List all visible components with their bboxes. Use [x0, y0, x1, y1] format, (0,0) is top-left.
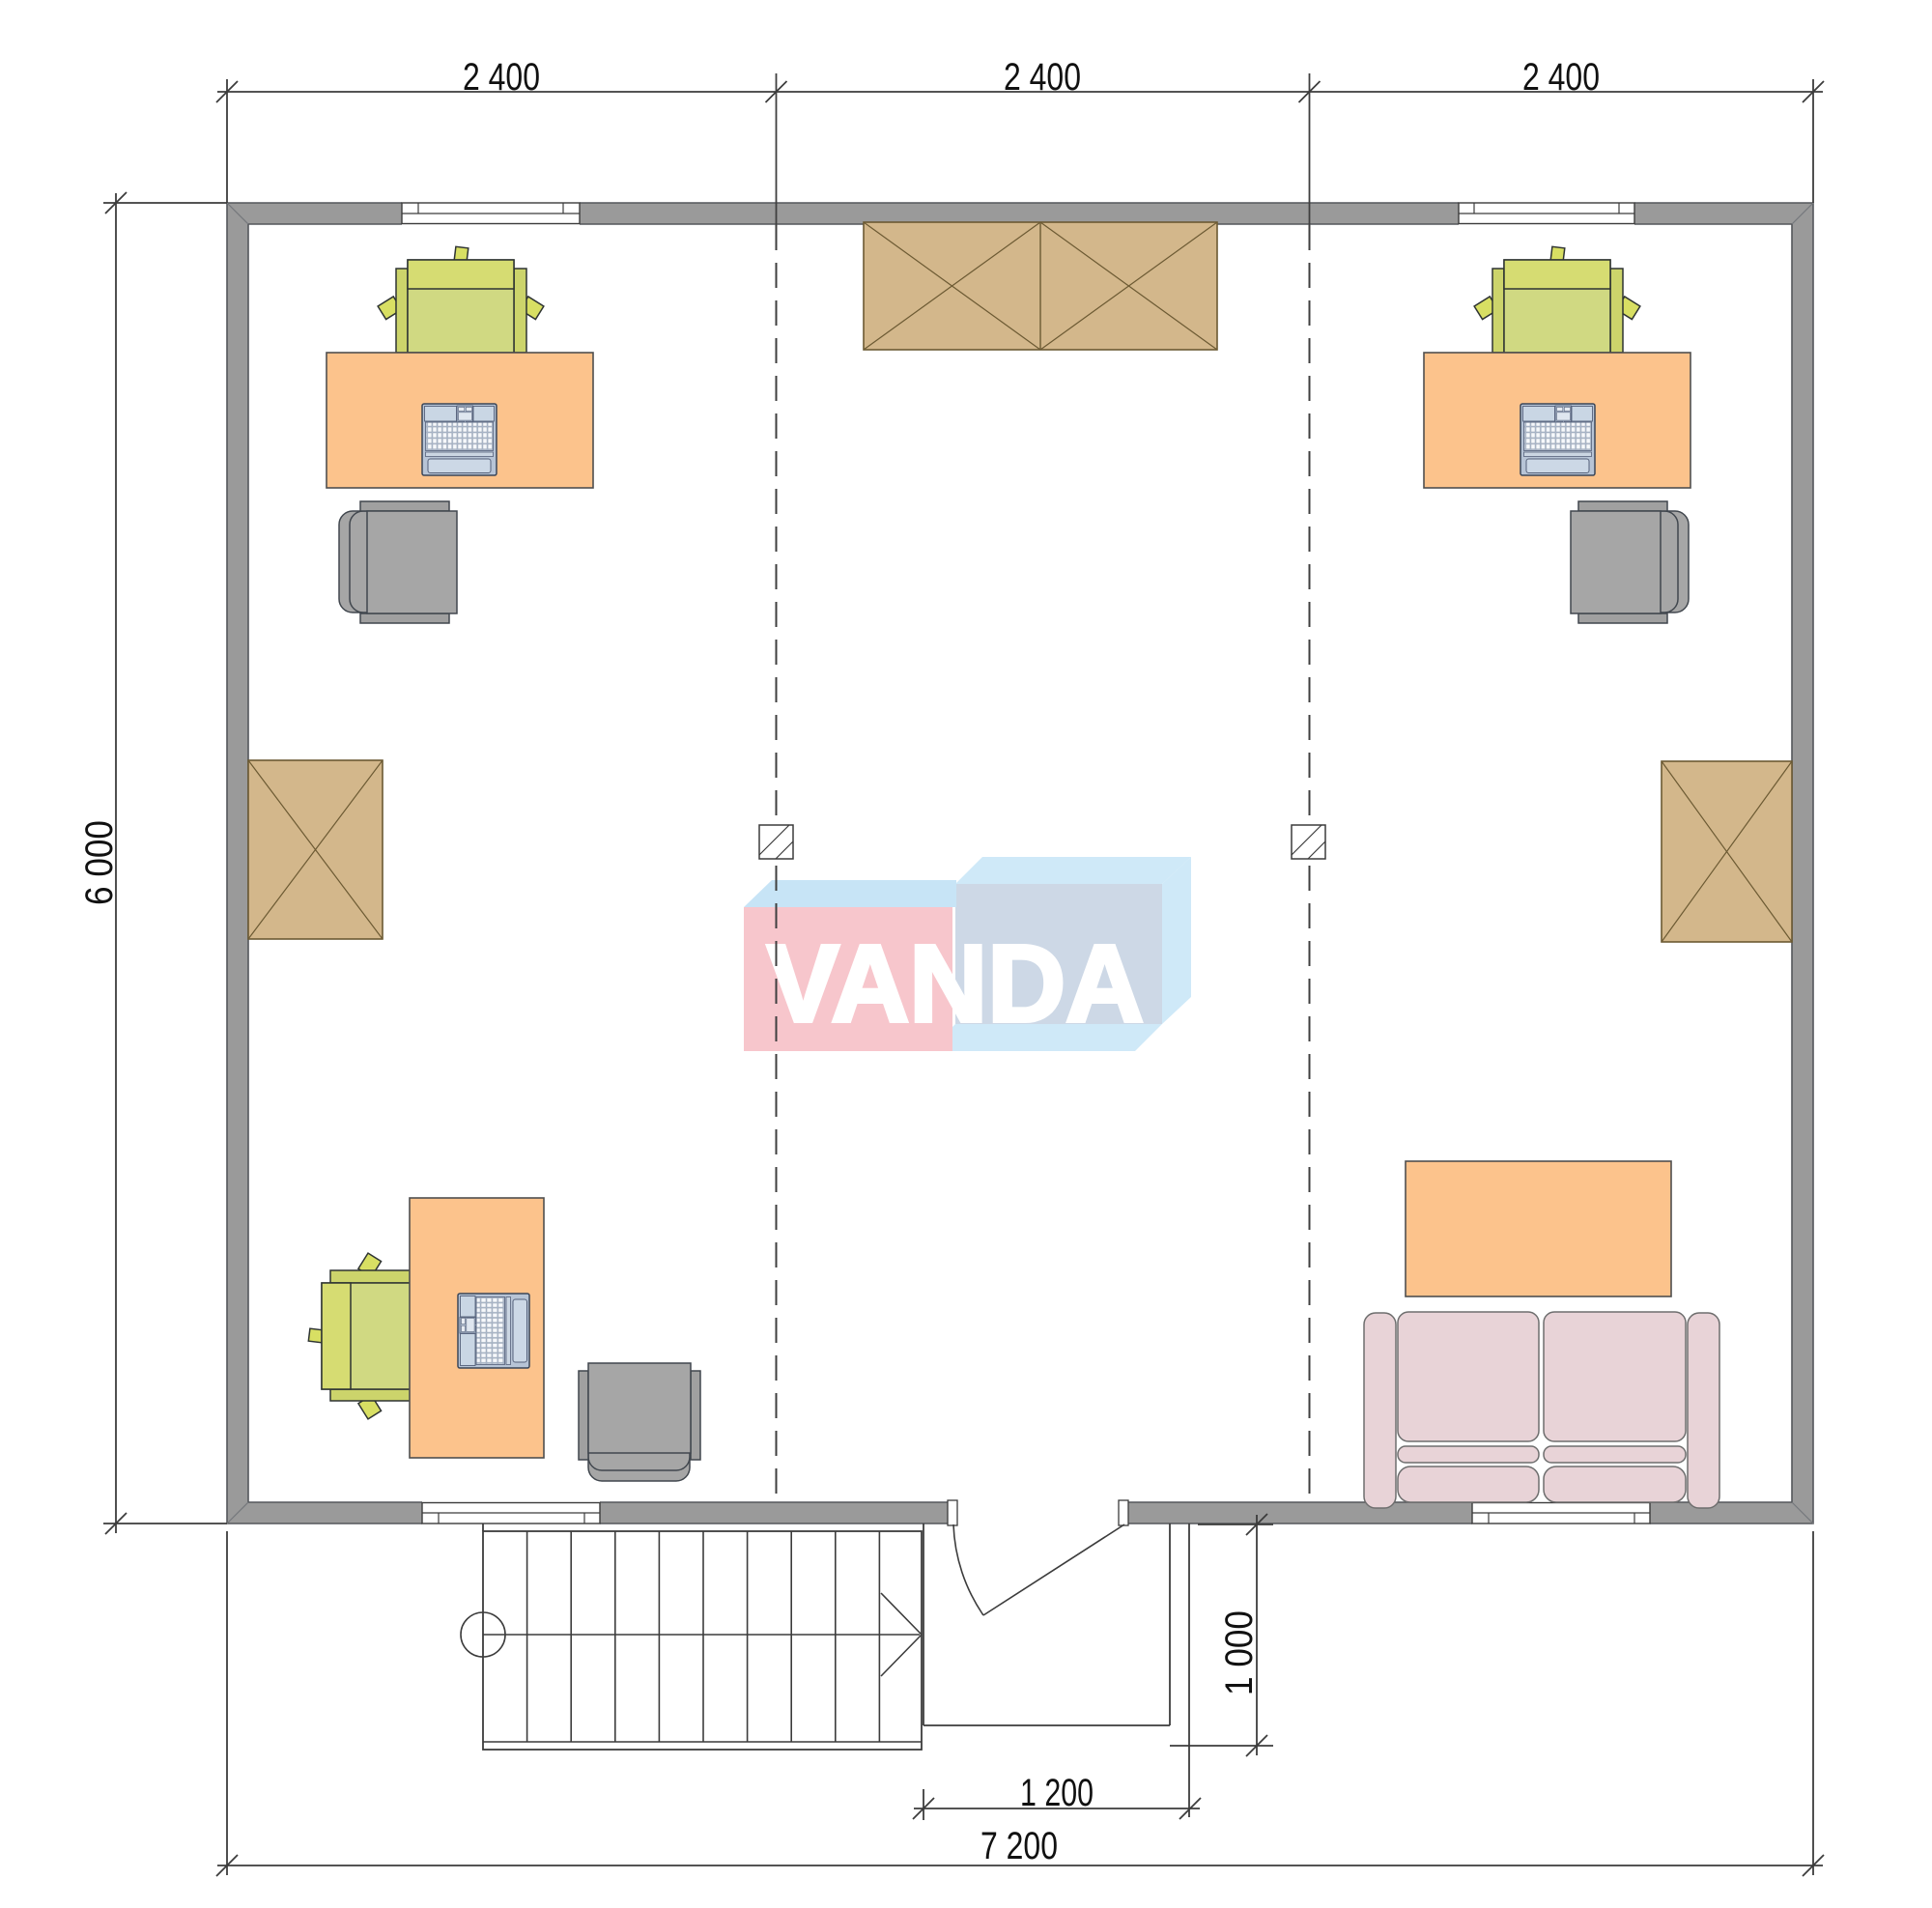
svg-text:1 000: 1 000 [1218, 1610, 1261, 1695]
svg-text:VANDA: VANDA [767, 923, 1144, 1044]
svg-text:2 400: 2 400 [463, 56, 540, 99]
svg-text:6 000: 6 000 [78, 820, 121, 905]
svg-text:7 200: 7 200 [980, 1825, 1058, 1867]
svg-text:2 400: 2 400 [1522, 56, 1600, 99]
svg-text:1 200: 1 200 [1020, 1772, 1094, 1814]
svg-text:2 400: 2 400 [1004, 56, 1081, 99]
